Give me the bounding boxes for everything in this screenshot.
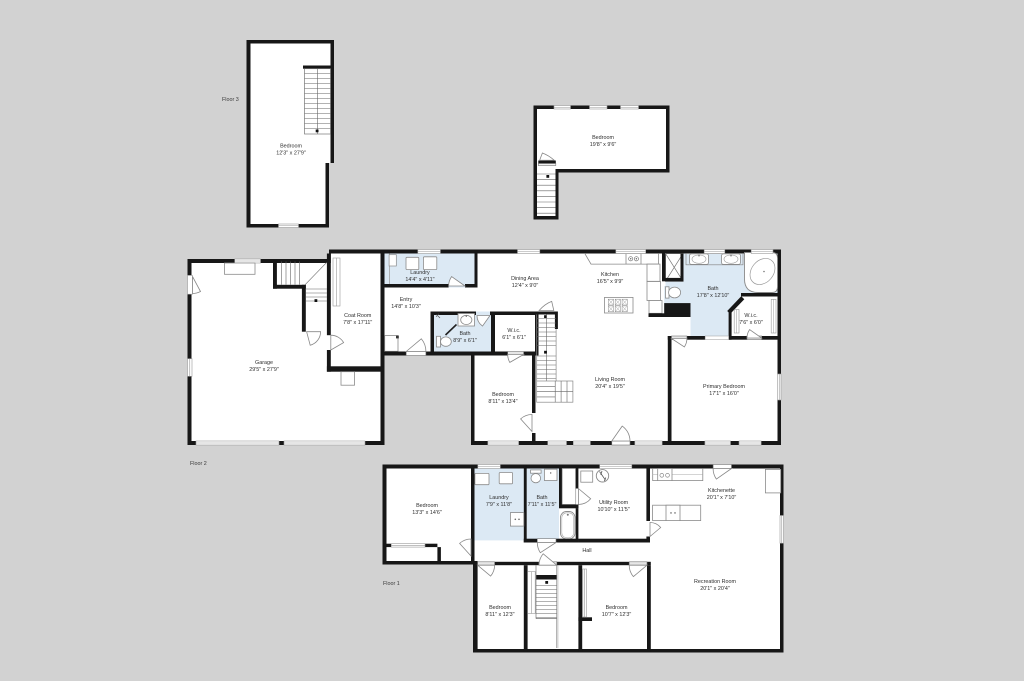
svg-text:Laundry: Laundry <box>489 495 509 501</box>
svg-text:20'1" x 7'10": 20'1" x 7'10" <box>707 495 737 501</box>
svg-text:Bedroom: Bedroom <box>489 605 511 611</box>
svg-text:Bath: Bath <box>707 286 718 292</box>
svg-text:10'7" x 12'3": 10'7" x 12'3" <box>602 612 632 618</box>
svg-text:16'5" x 9'9": 16'5" x 9'9" <box>597 279 624 285</box>
svg-text:W.i.c.: W.i.c. <box>744 313 757 319</box>
svg-text:Dining Area: Dining Area <box>511 276 539 282</box>
svg-text:Bedroom: Bedroom <box>592 135 614 141</box>
svg-text:Coat Room: Coat Room <box>344 313 372 319</box>
svg-text:Kitchenette: Kitchenette <box>708 488 735 494</box>
svg-text:Bedroom: Bedroom <box>606 605 628 611</box>
svg-text:Entry: Entry <box>400 297 413 303</box>
svg-text:Kitchen: Kitchen <box>601 272 619 278</box>
svg-text:12'4" x 9'0": 12'4" x 9'0" <box>512 283 539 289</box>
svg-text:Recreation Room: Recreation Room <box>694 579 736 585</box>
svg-text:7'6" x 6'0": 7'6" x 6'0" <box>739 320 763 326</box>
svg-text:Hall: Hall <box>582 548 591 554</box>
svg-text:19'8" x 9'6": 19'8" x 9'6" <box>590 142 617 148</box>
svg-text:10'10" x 11'5": 10'10" x 11'5" <box>598 507 630 513</box>
svg-text:Bath: Bath <box>459 331 470 337</box>
svg-text:20'4" x 19'5": 20'4" x 19'5" <box>595 384 625 390</box>
svg-text:Floor 2: Floor 2 <box>190 461 207 467</box>
svg-text:Utility Room: Utility Room <box>599 500 629 506</box>
svg-text:Bath: Bath <box>536 495 547 501</box>
svg-text:8'11" x 12'3": 8'11" x 12'3" <box>485 612 514 618</box>
svg-text:Garage: Garage <box>255 360 273 366</box>
svg-text:7'8" x 17'11": 7'8" x 17'11" <box>343 320 372 326</box>
svg-text:Primary Bedroom: Primary Bedroom <box>703 384 745 390</box>
svg-text:Bedroom: Bedroom <box>416 503 438 509</box>
svg-text:17'8" x 12'10": 17'8" x 12'10" <box>697 293 730 299</box>
svg-text:Bedroom: Bedroom <box>280 144 302 150</box>
svg-text:29'5" x 27'9": 29'5" x 27'9" <box>249 367 279 373</box>
svg-text:14'4" x 4'11": 14'4" x 4'11" <box>405 277 434 283</box>
svg-text:17'1" x 16'0": 17'1" x 16'0" <box>709 391 739 397</box>
svg-text:W.i.c.: W.i.c. <box>507 328 520 334</box>
svg-text:8'11" x 13'4": 8'11" x 13'4" <box>488 399 517 405</box>
svg-text:14'8" x 10'3": 14'8" x 10'3" <box>391 304 421 310</box>
svg-text:6'1" x 6'1": 6'1" x 6'1" <box>502 335 526 341</box>
svg-text:7'11" x 11'5": 7'11" x 11'5" <box>528 502 557 508</box>
svg-text:8'9" x 6'1": 8'9" x 6'1" <box>453 338 477 344</box>
svg-text:Laundry: Laundry <box>410 270 430 276</box>
svg-text:12'3" x 27'9": 12'3" x 27'9" <box>276 151 306 157</box>
svg-text:Bedroom: Bedroom <box>492 392 514 398</box>
svg-text:20'1" x 20'4": 20'1" x 20'4" <box>700 586 730 592</box>
svg-text:13'3" x 14'6": 13'3" x 14'6" <box>412 510 442 516</box>
svg-text:Floor 1: Floor 1 <box>383 581 400 587</box>
svg-text:7'9" x 11'8": 7'9" x 11'8" <box>486 502 512 508</box>
svg-text:Floor 3: Floor 3 <box>222 97 239 103</box>
svg-text:Living Room: Living Room <box>595 377 625 383</box>
